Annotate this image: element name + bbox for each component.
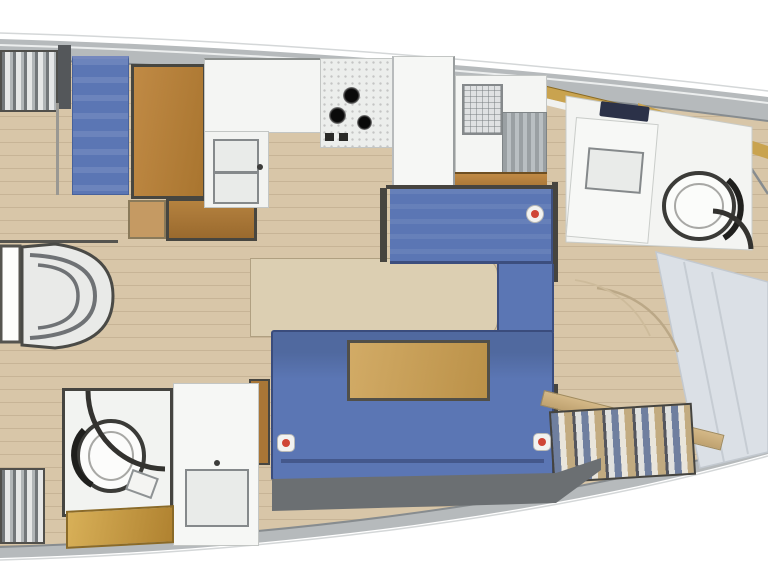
saloon-sideboard-end — [128, 200, 166, 239]
companionway-door — [1, 246, 20, 342]
aft-head-sink — [185, 469, 249, 527]
forward-cabin-striped-bench — [549, 403, 696, 484]
toilet-seat-fwd — [675, 184, 723, 228]
forward-head-vanity — [566, 117, 659, 244]
stove-burner-1 — [343, 87, 360, 104]
forward-head-sink — [585, 147, 644, 194]
forward-cabin-door-arc-2 — [575, 280, 650, 336]
aft-head-compartment — [62, 388, 173, 517]
nav-station-seat — [72, 56, 129, 195]
aft-wall-segment — [58, 45, 71, 109]
stove-burner-2 — [329, 107, 346, 124]
vent-marker-sofa-left — [277, 434, 295, 452]
companionway-steps — [1, 244, 113, 348]
forward-cabin-door-arc — [597, 288, 678, 352]
galley-second-sink — [462, 84, 503, 135]
stove-knob-1 — [325, 133, 334, 141]
wall-seam — [56, 103, 59, 195]
red-dot-icon — [282, 439, 290, 447]
sofa-wood-table — [347, 340, 490, 401]
step-edge-2 — [38, 265, 78, 328]
stove-knob-2 — [339, 133, 348, 141]
companionway-wall-line — [0, 240, 118, 243]
galley-sink-basin-2 — [213, 172, 259, 204]
galley-sink-unit — [204, 131, 269, 208]
dinette-settee — [390, 189, 553, 264]
forward-head-door-arc — [713, 211, 751, 249]
steps-outline — [22, 244, 113, 348]
galley-stove — [320, 58, 393, 148]
step-edge-1 — [30, 255, 95, 338]
vent-marker-sofa-right — [533, 433, 551, 451]
aft-head-vanity — [173, 383, 259, 546]
toilet-shadow-fwd — [724, 180, 741, 238]
galley-drainboard — [502, 112, 547, 173]
aft-head-wood-step — [66, 505, 174, 549]
stove-burner-3 — [357, 115, 372, 130]
aft-head-faucet — [214, 460, 220, 466]
galley-sink-basin-1 — [213, 139, 259, 173]
aft-locker-striped-bottom — [0, 468, 45, 544]
forward-head-toilet — [664, 173, 741, 239]
toilet-bowl-fwd — [664, 173, 734, 239]
galley-counter — [204, 58, 321, 133]
bow-chine-line — [738, 148, 768, 194]
mattress-seam-2 — [712, 272, 748, 454]
red-dot-icon — [531, 210, 539, 218]
aft-locker-striped-top — [0, 50, 58, 112]
red-dot-icon — [538, 438, 546, 446]
galley-fridge-counter — [392, 56, 455, 199]
galley-faucet — [257, 164, 263, 170]
saloon-table — [250, 258, 498, 337]
galley-end-wall — [380, 188, 387, 262]
vent-marker-dinette — [526, 205, 544, 223]
nav-station-chart-table — [131, 64, 206, 199]
sofa-seat-seam — [281, 459, 544, 463]
yacht-floor-plan — [0, 0, 768, 576]
dinette-chaise — [497, 264, 554, 332]
